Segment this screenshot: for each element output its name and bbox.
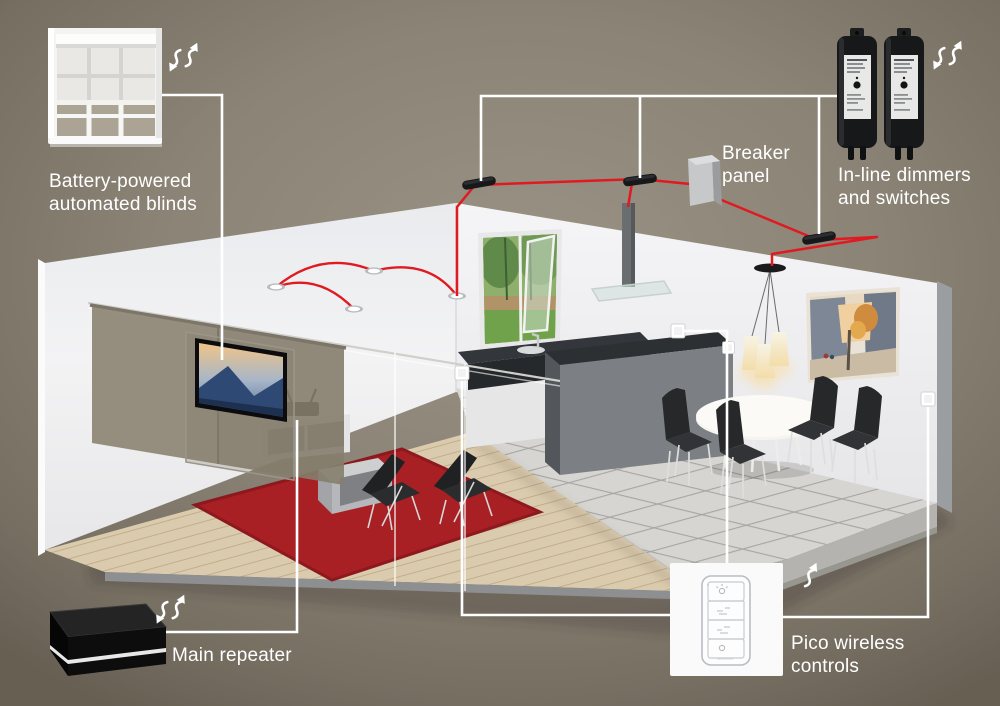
- kitchen-window: [478, 225, 562, 350]
- scene-canvas: [0, 0, 1000, 706]
- inline-dimmer-module: [461, 176, 496, 191]
- wireless-signal-icon: [930, 34, 966, 77]
- island-keypad: [723, 342, 735, 354]
- pico-illustration: [670, 563, 783, 676]
- dimmers-callout-line: [481, 96, 845, 181]
- kitchen-island: [545, 332, 733, 475]
- blinds-label: Battery-powered automated blinds: [49, 170, 197, 216]
- breaker-panel-box: [688, 155, 722, 206]
- wall-switch-dining: [921, 392, 935, 406]
- blinds-illustration: [48, 28, 162, 147]
- smart-home-diagram: Battery-powered automated blinds Breaker…: [0, 0, 1000, 706]
- main-repeater-illustration: [50, 604, 166, 676]
- main-repeater-label: Main repeater: [172, 644, 292, 667]
- pico-label: Pico wireless controls: [791, 632, 904, 678]
- inline-dimmers-illustration: [837, 28, 924, 160]
- wall-switch-hall: [671, 324, 685, 338]
- wall-painting: [806, 287, 900, 383]
- wireless-signal-icon: [166, 36, 202, 79]
- breaker-panel-label: Breaker panel: [722, 142, 790, 188]
- wall-switch-kitchen: [455, 366, 469, 380]
- inline-dimmers-label: In-line dimmers and switches: [838, 164, 971, 210]
